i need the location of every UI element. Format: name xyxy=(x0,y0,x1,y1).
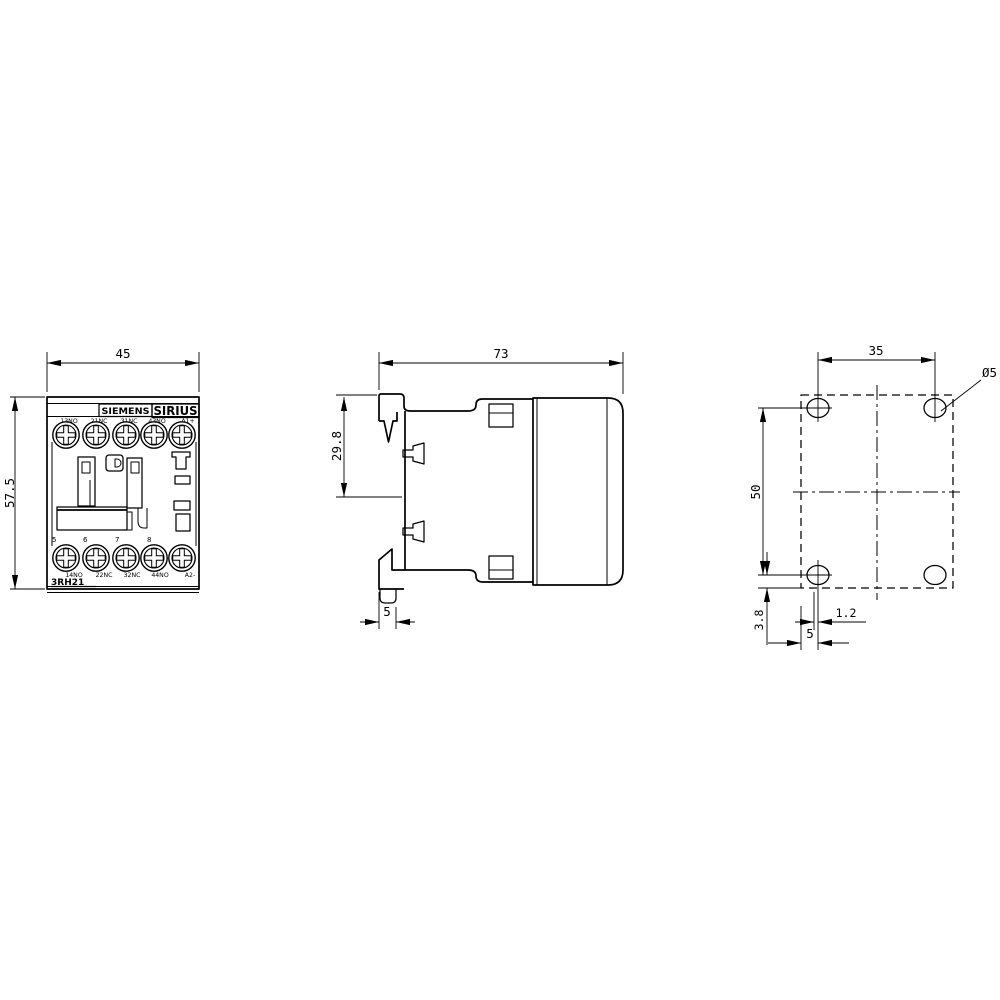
drill-pattern-view: 35 Ø5 50 3.8 1.2 xyxy=(748,343,997,650)
screw-terminal-icon xyxy=(113,422,139,448)
screw-terminal-icon xyxy=(53,545,79,571)
side-body-block xyxy=(533,398,623,585)
front-bottom-terminals: 5 6 7 8 14NO 22NC 32NC 44NO A2- xyxy=(52,536,195,579)
top-clip-hook xyxy=(379,412,397,442)
hole-diameter-label: Ø5 xyxy=(982,365,997,380)
terminal-label-bottom-3: 32NC xyxy=(124,572,141,579)
hole-diameter-callout: Ø5 xyxy=(941,365,997,411)
dimension-drawing: 45 57.5 SIEMENS SIRIUS 13NO xyxy=(0,0,1000,1000)
drill-offset-dimension: 3.8 xyxy=(752,552,803,645)
side-depth-dim-label: 73 xyxy=(493,346,508,361)
screw-terminal-icon xyxy=(169,422,195,448)
nameplate-tab xyxy=(127,512,132,530)
terminal-number-7: 7 xyxy=(115,536,119,544)
drill-horizontal-dimension: 35 xyxy=(818,343,935,360)
terminal-label-bottom-2: 22NC xyxy=(96,572,113,579)
front-header: SIEMENS SIRIUS xyxy=(99,403,199,418)
screw-terminal-icon xyxy=(83,545,109,571)
screw-terminal-icon xyxy=(141,545,167,571)
mounting-claw-bottom xyxy=(403,521,424,542)
side-foot-dimension: 5 xyxy=(360,592,415,629)
mounting-claw-top xyxy=(403,443,424,464)
side-rail-dimension: 29.8 xyxy=(329,395,402,497)
accessory-slot xyxy=(172,452,190,469)
drawing-canvas: 45 57.5 SIEMENS SIRIUS 13NO xyxy=(0,0,1000,1000)
drill-horizontal-dim-label: 35 xyxy=(868,343,883,358)
siemens-logo-text: SIEMENS xyxy=(102,407,150,417)
drill-clip-dim-label: 5 xyxy=(806,626,814,641)
terminal-label-bottom-5: A2- xyxy=(185,572,195,579)
front-height-dimension: 57.5 xyxy=(2,397,45,589)
screw-terminal-icon xyxy=(113,545,139,571)
side-terminal-top xyxy=(489,404,513,427)
sirius-logo-text: SIRIUS xyxy=(154,403,198,418)
drill-slot-dimension: 1.2 xyxy=(795,592,866,630)
screw-terminal-icon xyxy=(83,422,109,448)
terminal-number-8: 8 xyxy=(147,536,151,544)
terminal-number-6: 6 xyxy=(83,536,88,544)
screw-terminal-icon xyxy=(53,422,79,448)
side-depth-dimension: 73 xyxy=(379,346,623,394)
latch-slot-left xyxy=(78,457,95,506)
front-top-terminals: 13NO 21NC 31NC 43NO A1+ xyxy=(53,418,195,448)
side-profile xyxy=(379,394,623,603)
mounting-hole-bottom-right xyxy=(924,566,946,585)
side-view: 73 29.8 xyxy=(329,346,623,629)
front-width-dim-label: 45 xyxy=(115,346,130,361)
side-foot-dim-label: 5 xyxy=(383,604,391,619)
front-height-dim-label: 57.5 xyxy=(2,478,17,508)
side-rail-dim-label: 29.8 xyxy=(329,431,344,461)
screw-terminal-icon xyxy=(141,422,167,448)
front-model: 3RH21 xyxy=(51,578,96,588)
top-din-clip xyxy=(379,394,533,421)
side-slot-2 xyxy=(174,501,190,510)
front-width-dimension: 45 xyxy=(47,346,199,392)
terminal-number-5: 5 xyxy=(52,536,56,544)
test-button-detail xyxy=(115,459,121,467)
front-middle-details xyxy=(57,452,190,531)
bottom-rail-recess xyxy=(405,570,533,582)
drill-slot-dim-label: 1.2 xyxy=(836,606,857,620)
latch-tail xyxy=(138,508,147,528)
side-slot-3 xyxy=(176,514,190,531)
drill-vertical-dimension: 50 xyxy=(748,408,763,575)
side-slot-1 xyxy=(175,476,190,484)
screw-terminal-icon xyxy=(169,545,195,571)
terminal-label-bottom-4: 44NO xyxy=(151,572,169,579)
latch-slot-right xyxy=(127,458,142,508)
side-terminal-bottom xyxy=(489,556,513,579)
front-view: 45 57.5 SIEMENS SIRIUS 13NO xyxy=(2,346,199,593)
drill-offset-dim-label: 3.8 xyxy=(752,610,766,631)
clip-foot xyxy=(380,589,396,603)
bottom-din-clip xyxy=(379,549,405,589)
drill-vertical-dim-label: 50 xyxy=(748,484,763,499)
